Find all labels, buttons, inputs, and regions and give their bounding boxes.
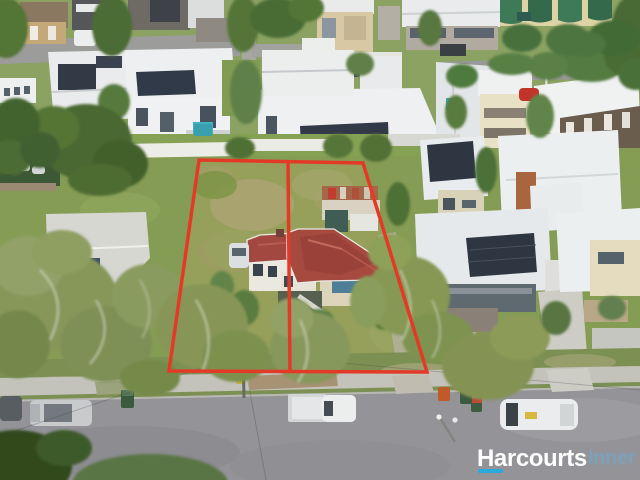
svg-text:Inner East: Inner East bbox=[588, 447, 640, 469]
svg-text:Harcourts: Harcourts bbox=[477, 445, 587, 472]
